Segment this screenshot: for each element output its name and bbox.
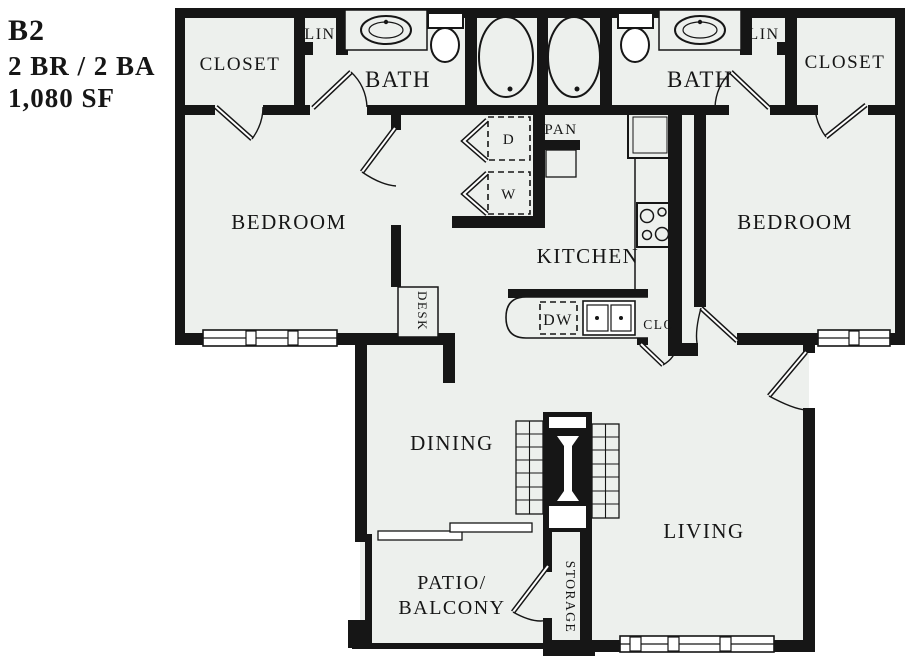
living-window [620,636,774,652]
label-living: LIVING [663,519,744,543]
label-desk: DESK [415,291,430,331]
label-patio-line1: PATIO/ [417,572,486,594]
bedroom-left-window [203,330,337,346]
label-bedroom-left: BEDROOM [231,210,347,234]
bath-right-sink [659,10,741,50]
kitchen-sink [583,301,635,335]
label-closet-left: CLOSET [200,54,281,75]
label-kitchen: KITCHEN [537,244,640,268]
label-dining: DINING [410,431,494,455]
label-hall-closet: CLO [643,317,675,332]
label-closet-right: CLOSET [805,52,886,73]
label-patio-line2: BALCONY [398,597,505,619]
label-bath-left: BATH [365,67,431,92]
bedroom-right-window [818,330,890,346]
label-pantry: PAN [544,122,577,138]
label-storage: STORAGE [563,561,578,634]
plan-area: 1,080 SF [8,83,115,113]
floor-plan: B2 2 BR / 2 BA 1,080 SF CLOSET LIN BATH … [0,0,912,656]
label-linen-right: LIN [748,26,779,43]
label-dishwasher: DW [543,312,573,329]
bath-left-sink [345,10,427,50]
plan-title: B2 2 BR / 2 BA 1,080 SF [8,14,156,113]
plan-config: 2 BR / 2 BA [8,51,156,81]
label-bedroom-right: BEDROOM [737,210,853,234]
floor-plan-canvas: B2 2 BR / 2 BA 1,080 SF CLOSET LIN BATH … [0,0,912,656]
label-washer: W [501,187,517,203]
label-bath-right: BATH [667,67,733,92]
label-dryer: D [503,132,515,148]
label-linen-left: LIN [304,26,335,43]
plan-code: B2 [8,14,45,47]
